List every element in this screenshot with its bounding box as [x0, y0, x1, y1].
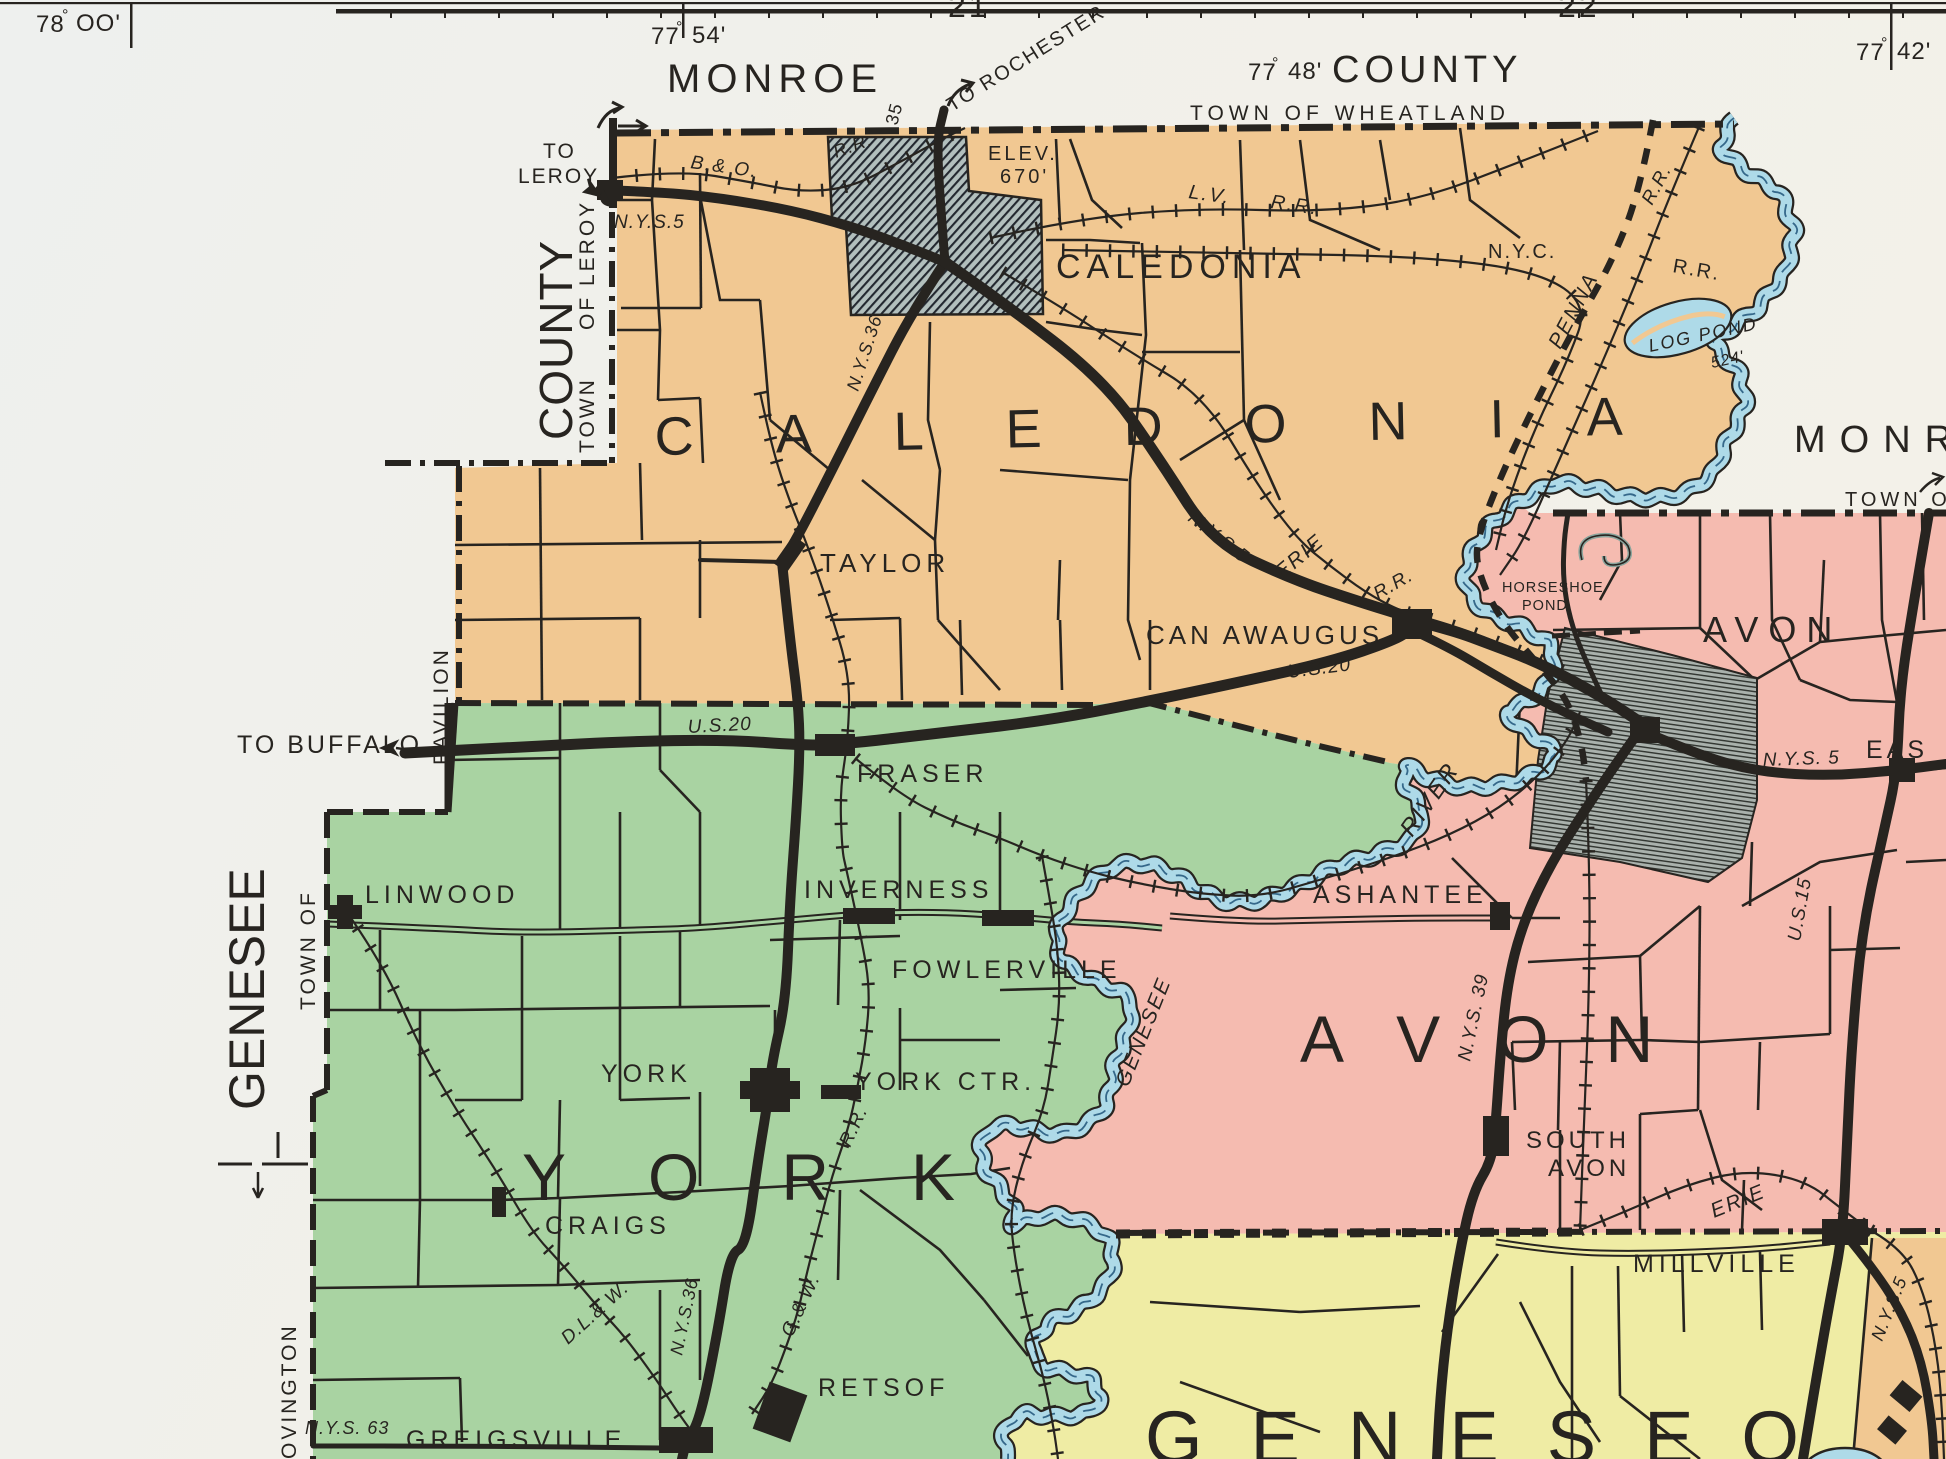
- svg-text:OO': OO': [76, 10, 121, 37]
- svg-text:LEROY: LEROY: [518, 165, 599, 188]
- svg-text:RETSOF: RETSOF: [818, 1374, 949, 1402]
- svg-text:INVERNESS: INVERNESS: [804, 876, 993, 904]
- svg-text:AVON: AVON: [1703, 609, 1842, 650]
- svg-text:YORK: YORK: [601, 1060, 692, 1088]
- svg-text:°: °: [1881, 35, 1889, 52]
- svg-text:OF LEROY: OF LEROY: [576, 200, 599, 330]
- svg-text:ELEV.: ELEV.: [988, 143, 1058, 165]
- svg-text:N.Y.S.5: N.Y.S.5: [614, 212, 685, 233]
- svg-text:°: °: [62, 7, 70, 24]
- svg-text:AVON: AVON: [1548, 1155, 1630, 1182]
- svg-text:CRAIGS: CRAIGS: [545, 1212, 671, 1240]
- svg-text:YORK CTR.: YORK CTR.: [855, 1068, 1036, 1096]
- svg-text:POND: POND: [1522, 598, 1568, 614]
- svg-text:TOWN OF WHEATLAND: TOWN OF WHEATLAND: [1190, 102, 1510, 125]
- svg-text:22: 22: [1558, 0, 1600, 24]
- svg-text:AVON: AVON: [1300, 1002, 1710, 1076]
- svg-text:TOWN OF: TOWN OF: [297, 890, 320, 1010]
- svg-text:PAVILION: PAVILION: [430, 647, 453, 765]
- svg-text:48': 48': [1288, 58, 1322, 85]
- svg-text:GENESEE: GENESEE: [219, 868, 275, 1110]
- svg-text:°: °: [1272, 55, 1280, 72]
- svg-text:GREIGSVILLE: GREIGSVILLE: [406, 1426, 626, 1454]
- svg-text:GENESEO: GENESEO: [1145, 1396, 1847, 1459]
- svg-text:OVINGTON: OVINGTON: [278, 1323, 301, 1459]
- svg-text:TO BUFFALO: TO BUFFALO: [237, 731, 422, 759]
- svg-text:N.Y.C.: N.Y.C.: [1488, 241, 1556, 263]
- svg-text:TO: TO: [543, 140, 576, 163]
- svg-text:CAN AWAUGUS: CAN AWAUGUS: [1146, 620, 1383, 650]
- svg-text:670': 670': [1000, 166, 1049, 188]
- svg-text:TOWN O: TOWN O: [1845, 489, 1946, 511]
- svg-text:LINWOOD: LINWOOD: [365, 881, 519, 909]
- svg-text:°: °: [676, 19, 684, 36]
- svg-text:ASHANTEE: ASHANTEE: [1313, 881, 1488, 909]
- svg-text:YORK: YORK: [522, 1140, 1037, 1214]
- svg-text:N.Y.S. 5: N.Y.S. 5: [1762, 747, 1840, 771]
- svg-text:MONR: MONR: [1794, 419, 1946, 461]
- svg-text:EAS: EAS: [1866, 736, 1928, 764]
- svg-text:MONROE: MONROE: [667, 57, 883, 101]
- svg-text:21: 21: [948, 0, 990, 24]
- svg-text:TOWN: TOWN: [576, 377, 599, 453]
- svg-text:SOUTH: SOUTH: [1526, 1127, 1630, 1154]
- svg-text:MILLVILLE: MILLVILLE: [1633, 1250, 1800, 1278]
- svg-text:N.Y.S. 63: N.Y.S. 63: [305, 1418, 389, 1438]
- svg-text:U.S.20: U.S.20: [687, 714, 752, 738]
- svg-text:54': 54': [692, 22, 726, 49]
- svg-text:CALEDONIA: CALEDONIA: [1056, 248, 1307, 286]
- svg-text:TAYLOR: TAYLOR: [820, 548, 950, 578]
- svg-text:COUNTY: COUNTY: [530, 240, 582, 440]
- svg-text:78: 78: [36, 11, 65, 38]
- svg-text:FRASER: FRASER: [857, 760, 988, 788]
- svg-text:FOWLERVILLE: FOWLERVILLE: [892, 956, 1122, 984]
- svg-text:HORSESHOE: HORSESHOE: [1502, 580, 1604, 596]
- svg-text:COUNTY: COUNTY: [1332, 49, 1522, 91]
- svg-text:42': 42': [1897, 38, 1931, 65]
